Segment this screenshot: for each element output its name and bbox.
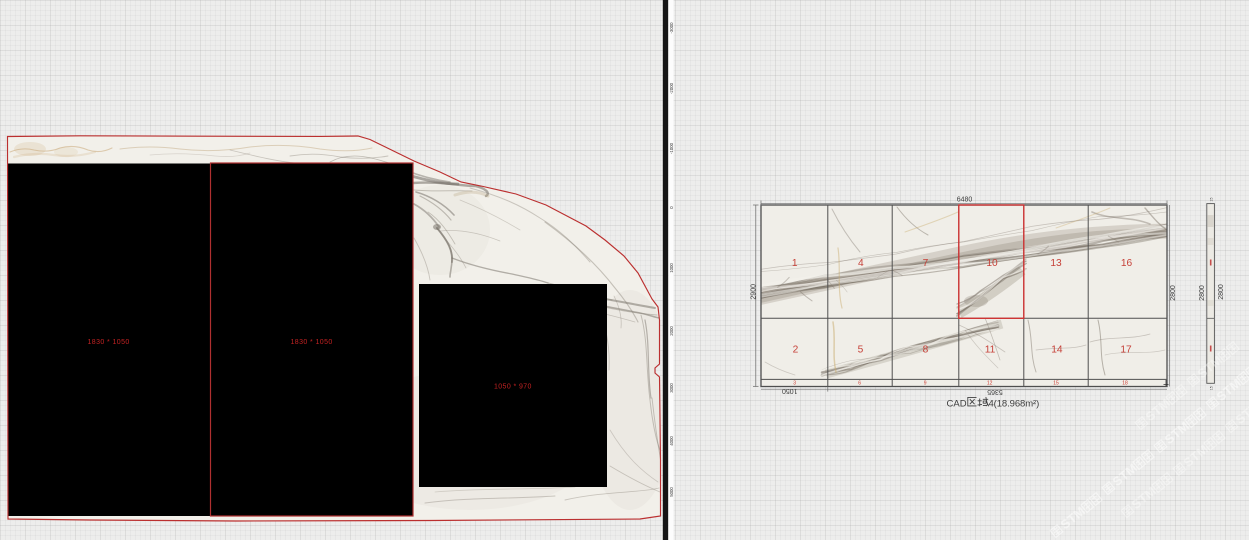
svg-text:-1000: -1000 bbox=[669, 142, 674, 154]
svg-text:10: 10 bbox=[986, 258, 998, 269]
svg-text:7: 7 bbox=[923, 258, 929, 269]
svg-text:17: 17 bbox=[1120, 345, 1132, 356]
svg-text:2800: 2800 bbox=[1199, 285, 1206, 301]
svg-text:15: 15 bbox=[1209, 386, 1213, 390]
svg-text:1050: 1050 bbox=[782, 387, 798, 394]
svg-text:5000: 5000 bbox=[669, 487, 674, 497]
svg-text:8: 8 bbox=[923, 345, 929, 356]
svg-text:6: 6 bbox=[858, 381, 861, 387]
svg-text:5365: 5365 bbox=[987, 388, 1003, 395]
svg-text:4000: 4000 bbox=[669, 436, 674, 446]
svg-text:1830 * 1050: 1830 * 1050 bbox=[88, 339, 130, 346]
svg-text:2: 2 bbox=[793, 345, 799, 356]
svg-text:1: 1 bbox=[792, 258, 798, 269]
svg-text:2800: 2800 bbox=[1218, 284, 1225, 300]
svg-text:11: 11 bbox=[985, 345, 996, 356]
svg-text:3: 3 bbox=[793, 381, 796, 387]
svg-text:12: 12 bbox=[987, 381, 993, 387]
svg-text:4: 4 bbox=[858, 258, 864, 269]
svg-text:CAD: CAD bbox=[947, 398, 967, 409]
svg-text:-2000: -2000 bbox=[669, 82, 674, 94]
svg-text:-3000: -3000 bbox=[669, 22, 674, 34]
svg-text:14: 14 bbox=[1051, 345, 1063, 356]
svg-text:4(18.968m²): 4(18.968m²) bbox=[989, 398, 1040, 409]
svg-text:2800: 2800 bbox=[1170, 285, 1177, 301]
svg-text:16: 16 bbox=[1121, 258, 1133, 269]
svg-text:6480: 6480 bbox=[957, 197, 973, 204]
svg-text:1830 * 1050: 1830 * 1050 bbox=[291, 339, 333, 346]
svg-text:18: 18 bbox=[1122, 381, 1128, 387]
svg-text:15: 15 bbox=[1209, 198, 1213, 202]
svg-text:2900: 2900 bbox=[750, 284, 757, 300]
svg-text:3000: 3000 bbox=[669, 383, 674, 393]
svg-text:2000: 2000 bbox=[669, 326, 674, 336]
svg-text:5: 5 bbox=[858, 345, 864, 356]
svg-text:1000: 1000 bbox=[669, 263, 674, 273]
svg-text:15: 15 bbox=[1053, 381, 1059, 387]
svg-text:13: 13 bbox=[1050, 258, 1062, 269]
svg-text:9: 9 bbox=[924, 381, 927, 387]
svg-text:1050 * 970: 1050 * 970 bbox=[494, 384, 532, 391]
